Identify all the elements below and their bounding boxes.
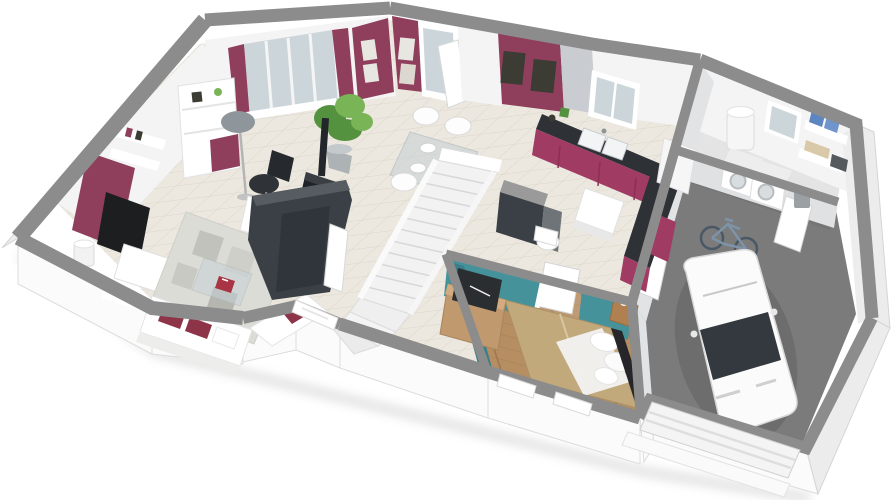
mirror xyxy=(771,309,778,316)
floor-plan-render xyxy=(0,0,896,500)
bookcase-door xyxy=(210,134,240,172)
counter-plant xyxy=(559,107,569,117)
mirror xyxy=(691,331,698,338)
counter-item xyxy=(549,115,556,122)
office-chair-seat xyxy=(249,174,279,194)
water-heater xyxy=(727,107,754,151)
